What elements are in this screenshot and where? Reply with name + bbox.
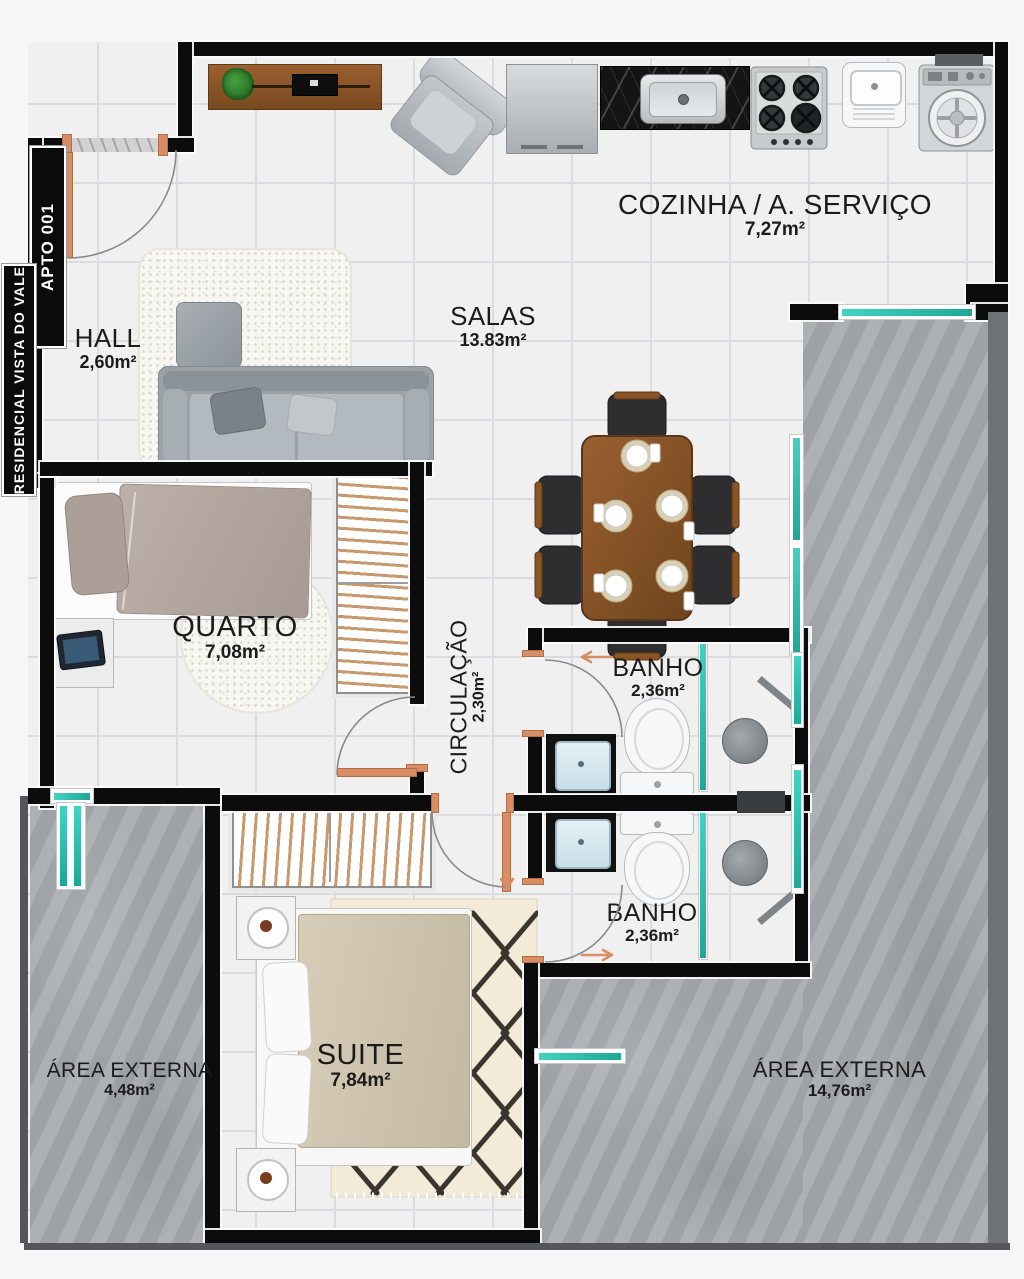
- vent: [935, 54, 983, 66]
- room-name: BANHO: [572, 900, 732, 926]
- room-name: BANHO: [578, 655, 738, 681]
- pouf: [176, 302, 242, 368]
- vanity: [546, 812, 616, 872]
- toilet: [624, 698, 690, 776]
- wall: [528, 963, 810, 977]
- building-tag-label: RESIDENCIAL VISTA DO VALE: [11, 266, 27, 494]
- wall: [40, 478, 54, 808]
- room-label-banho-2: BANHO 2,36m²: [572, 900, 732, 945]
- window: [794, 656, 801, 724]
- window: [539, 1053, 621, 1060]
- sofa-pillow: [286, 393, 338, 437]
- plan-edge: [20, 796, 28, 1243]
- shaft: [737, 791, 785, 813]
- toilet-tank: [620, 772, 694, 795]
- wall: [40, 462, 432, 476]
- room-area: 2,36m²: [572, 927, 732, 945]
- room-label-salas: SALAS 13.83m²: [408, 303, 578, 350]
- exterior-area-large-south: [538, 977, 803, 1243]
- room-label-cozinha: COZINHA / A. SERVIÇO 7,27m²: [610, 190, 940, 240]
- bed-duvet: [116, 484, 311, 619]
- shower-head: [722, 840, 768, 886]
- floor-plan: APTO 001 RESIDENCIAL VISTA DO VALE COZIN…: [0, 0, 1024, 1279]
- door-jamb: [431, 793, 439, 813]
- suite-wardrobe: [232, 810, 432, 888]
- dining-set: [532, 390, 742, 662]
- room-label-area-externa-2: ÁREA EXTERNA 14,76m²: [742, 1058, 937, 1100]
- plan-edge: [24, 1243, 1010, 1250]
- room-label-area-externa-1: ÁREA EXTERNA 4,48m²: [42, 1060, 217, 1100]
- window: [793, 548, 800, 652]
- room-label-hall: HALL 2,60m²: [48, 325, 168, 372]
- window: [54, 793, 90, 800]
- room-area: 7,08m²: [145, 643, 325, 663]
- room-name: HALL: [48, 325, 168, 352]
- wall: [790, 304, 842, 320]
- room-label-quarto: QUARTO 7,08m²: [145, 612, 325, 663]
- room-area: 7,84m²: [278, 1071, 443, 1091]
- refrigerator: [506, 64, 598, 154]
- room-area: 2,36m²: [578, 682, 738, 700]
- wall: [995, 42, 1008, 310]
- door-jamb: [506, 793, 514, 813]
- room-name: COZINHA / A. SERVIÇO: [610, 190, 940, 219]
- window: [794, 770, 801, 888]
- wall: [524, 963, 538, 1244]
- tv-light: [310, 80, 318, 86]
- door-threshold: [70, 138, 162, 152]
- room-name: ÁREA EXTERNA: [42, 1060, 217, 1082]
- bed-duvet: [298, 914, 470, 1148]
- plan-edge: [988, 312, 1008, 1243]
- window: [842, 309, 972, 316]
- wall: [205, 795, 220, 1245]
- room-name: CIRCULAÇÃO: [446, 620, 470, 775]
- bed-pillow: [64, 492, 130, 597]
- window: [60, 806, 67, 886]
- room-name: SUITE: [278, 1040, 443, 1070]
- plant-icon: [222, 68, 254, 100]
- apartment-tag-label: APTO 001: [38, 203, 58, 291]
- sofa-pillow: [209, 386, 267, 436]
- door-leaf: [502, 812, 511, 892]
- window: [793, 438, 800, 540]
- wall: [528, 628, 810, 642]
- kitchen-sink: [640, 74, 726, 124]
- nightstand: [236, 896, 296, 960]
- door-jamb: [522, 878, 544, 885]
- room-name: ÁREA EXTERNA: [742, 1058, 937, 1081]
- wall: [178, 42, 1008, 56]
- tablet: [56, 629, 106, 670]
- shower-head: [722, 718, 768, 764]
- stove: [750, 66, 828, 150]
- window: [74, 806, 81, 886]
- room-area: 4,48m²: [42, 1083, 217, 1100]
- door-jamb: [522, 956, 544, 963]
- room-label-suite: SUITE 7,84m²: [278, 1040, 443, 1091]
- room-name: QUARTO: [145, 612, 325, 642]
- room-name: SALAS: [408, 303, 578, 330]
- vanity: [546, 734, 616, 794]
- nightstand: [236, 1148, 296, 1212]
- room-label-banho-1: BANHO 2,36m²: [578, 655, 738, 700]
- wall: [178, 42, 192, 152]
- washing-machine: [918, 64, 996, 152]
- room-area: 7,27m²: [610, 220, 940, 240]
- wall: [205, 795, 437, 811]
- room-area: 14,76m²: [742, 1082, 937, 1100]
- room-label-circulacao: CIRCULAÇÃO 2,30m²: [382, 612, 552, 782]
- building-tag: RESIDENCIAL VISTA DO VALE: [2, 264, 36, 496]
- room-area: 2,30m²: [471, 620, 488, 775]
- door-jamb: [158, 134, 168, 156]
- room-area: 13.83m²: [408, 331, 578, 350]
- room-area: 2,60m²: [48, 353, 168, 372]
- laundry-tank: [842, 62, 906, 128]
- toilet: [624, 832, 690, 906]
- exterior-area-large: [803, 320, 988, 1243]
